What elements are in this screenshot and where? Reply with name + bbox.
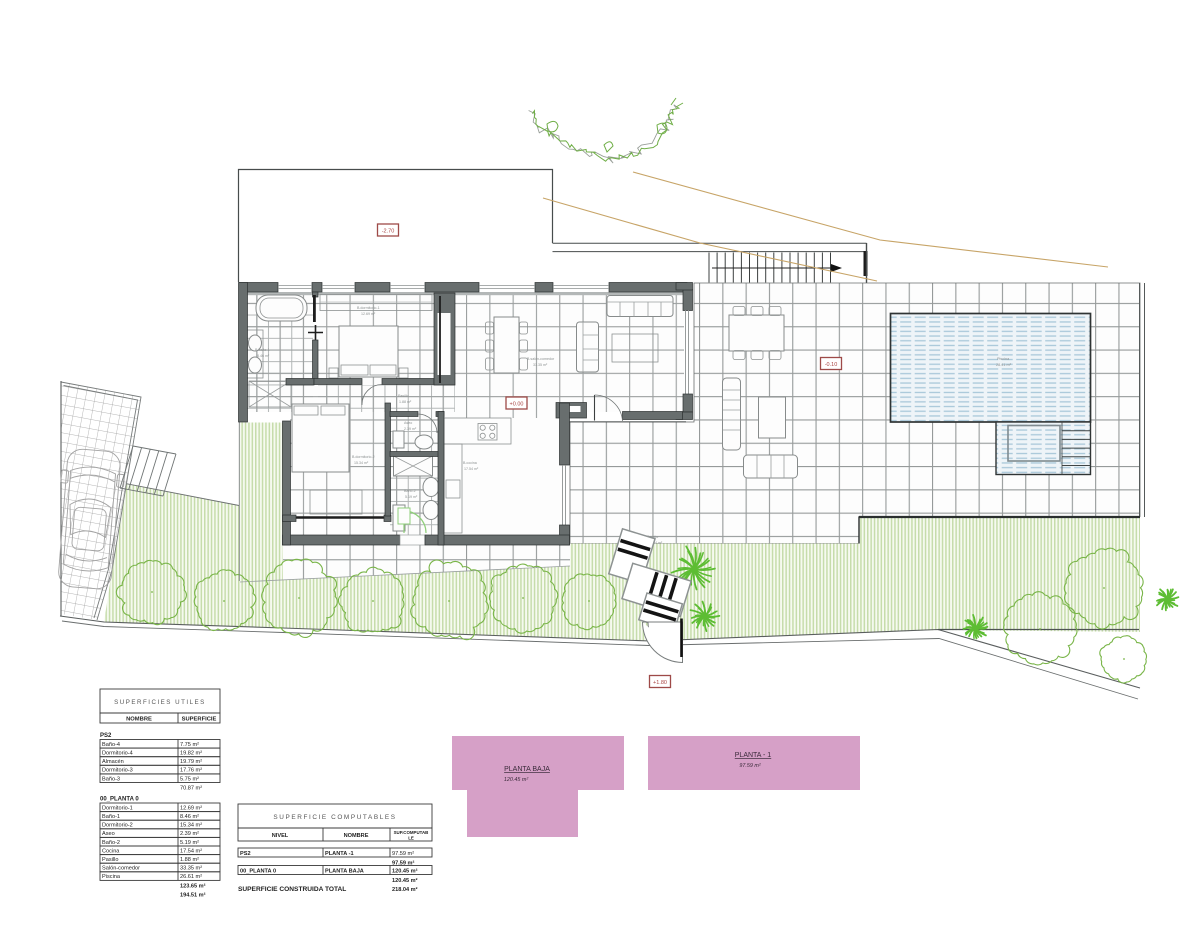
svg-text:SUP.COMPUTAB: SUP.COMPUTAB — [394, 830, 429, 835]
svg-text:-0.10: -0.10 — [825, 362, 838, 368]
svg-text:120.45 m²: 120.45 m² — [392, 877, 418, 884]
svg-text:PLANTA -1: PLANTA -1 — [325, 851, 354, 857]
svg-text:120.45 m²: 120.45 m² — [504, 777, 528, 783]
svg-text:1.88 m²: 1.88 m² — [399, 400, 412, 404]
svg-text:B.salón-comedor: B.salón-comedor — [527, 357, 555, 361]
svg-text:26.61 m²: 26.61 m² — [180, 874, 202, 880]
svg-text:194.51 m²: 194.51 m² — [180, 891, 206, 898]
svg-text:97.59 m²: 97.59 m² — [739, 763, 760, 769]
svg-text:17.54 m²: 17.54 m² — [180, 848, 202, 854]
svg-text:Pasillo: Pasillo — [102, 857, 118, 863]
svg-text:PLANTA BAJA: PLANTA BAJA — [504, 766, 550, 773]
svg-text:12.69 m²: 12.69 m² — [361, 312, 376, 316]
svg-text:00_PLANTA 0: 00_PLANTA 0 — [100, 797, 139, 803]
svg-text:5.19 m²: 5.19 m² — [405, 495, 418, 499]
svg-text:Baño-2: Baño-2 — [102, 840, 120, 846]
svg-text:12.69 m²: 12.69 m² — [180, 805, 202, 811]
svg-text:NOMBRE: NOMBRE — [344, 833, 369, 839]
svg-text:Aseo: Aseo — [404, 421, 412, 425]
svg-text:+1.80: +1.80 — [653, 680, 667, 686]
svg-text:SUPERFICIE CONSTRUIDA TOTAL: SUPERFICIE CONSTRUIDA TOTAL — [238, 886, 346, 893]
svg-text:Salón-comedor: Salón-comedor — [102, 866, 140, 872]
svg-text:8.46 m²: 8.46 m² — [257, 354, 270, 358]
svg-text:NIVEL: NIVEL — [272, 833, 289, 839]
svg-text:28.41 m²: 28.41 m² — [996, 363, 1012, 367]
svg-text:33.35 m²: 33.35 m² — [180, 866, 202, 872]
svg-text:+0.00: +0.00 — [510, 402, 524, 408]
svg-text:B.cocina: B.cocina — [463, 461, 477, 465]
svg-text:Dormitorio-2: Dormitorio-2 — [102, 823, 133, 829]
svg-text:B.dormitorio-1: B.dormitorio-1 — [357, 306, 380, 310]
svg-text:SUPERFICIES UTILES: SUPERFICIES UTILES — [114, 699, 206, 706]
svg-text:17.76 m²: 17.76 m² — [180, 768, 202, 774]
svg-text:PLANTA - 1: PLANTA - 1 — [735, 752, 772, 759]
svg-text:5.75 m²: 5.75 m² — [180, 776, 199, 782]
svg-text:SUPERFICIE COMPUTABLES: SUPERFICIE COMPUTABLES — [273, 814, 396, 821]
svg-text:123.65 m²: 123.65 m² — [180, 882, 206, 889]
svg-text:00_PLANTA 0: 00_PLANTA 0 — [240, 869, 276, 875]
svg-text:Baño-1: Baño-1 — [102, 814, 120, 820]
svg-text:Piscina: Piscina — [102, 874, 121, 880]
svg-text:1.88 m²: 1.88 m² — [180, 857, 199, 863]
svg-text:Dormitorio-1: Dormitorio-1 — [102, 805, 133, 811]
svg-text:NOMBRE: NOMBRE — [126, 717, 152, 723]
svg-text:7.75 m²: 7.75 m² — [180, 742, 199, 748]
svg-text:PS2: PS2 — [100, 733, 112, 739]
svg-text:120.45 m²: 120.45 m² — [392, 868, 418, 875]
svg-text:70.87 m²: 70.87 m² — [180, 786, 202, 792]
svg-text:-2.70: -2.70 — [382, 229, 395, 235]
svg-text:5.19 m²: 5.19 m² — [180, 840, 199, 846]
svg-text:Dormitorio-3: Dormitorio-3 — [102, 768, 133, 774]
svg-text:PS2: PS2 — [240, 851, 251, 857]
svg-text:218.04 m²: 218.04 m² — [392, 886, 418, 893]
svg-text:2.39 m²: 2.39 m² — [404, 427, 417, 431]
svg-text:Pasillo: Pasillo — [398, 394, 409, 398]
svg-text:97.59 m²: 97.59 m² — [392, 851, 414, 857]
svg-text:Cocina: Cocina — [102, 848, 120, 854]
svg-text:15.34 m²: 15.34 m² — [354, 461, 369, 465]
svg-text:Baño-2: Baño-2 — [404, 489, 416, 493]
svg-text:B.dormitorio-2: B.dormitorio-2 — [352, 455, 375, 459]
svg-text:19.79 m²: 19.79 m² — [180, 759, 202, 765]
svg-text:Almacén: Almacén — [102, 759, 124, 765]
svg-text:Dormitorio-4: Dormitorio-4 — [102, 751, 133, 757]
svg-text:SUPERFICIE: SUPERFICIE — [182, 717, 217, 723]
svg-text:Baño-4: Baño-4 — [102, 742, 120, 748]
svg-text:33.35 m²: 33.35 m² — [533, 363, 548, 367]
svg-text:17.54 m²: 17.54 m² — [464, 467, 479, 471]
svg-text:PLANTA BAJA: PLANTA BAJA — [325, 869, 364, 875]
svg-text:Aseo: Aseo — [102, 831, 115, 837]
svg-text:Baño-3: Baño-3 — [102, 776, 120, 782]
svg-text:8.46 m²: 8.46 m² — [180, 814, 199, 820]
svg-text:Piscina: Piscina — [997, 357, 1010, 361]
svg-text:LE: LE — [408, 836, 414, 841]
svg-text:15.34 m²: 15.34 m² — [180, 823, 202, 829]
svg-text:2.39 m²: 2.39 m² — [180, 831, 199, 837]
svg-text:19.82 m²: 19.82 m² — [180, 751, 202, 757]
svg-text:B.baño-1: B.baño-1 — [255, 348, 270, 352]
